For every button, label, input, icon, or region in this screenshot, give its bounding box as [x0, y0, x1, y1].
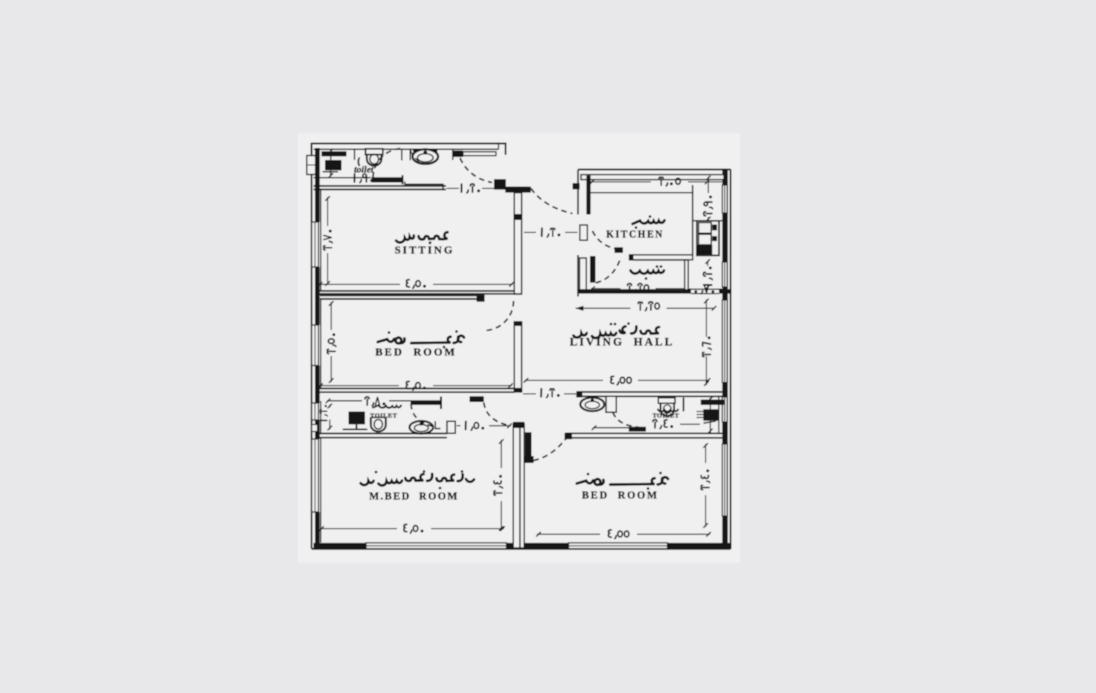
svg-text:BED ROOM: BED ROOM: [375, 347, 457, 359]
svg-text:TOILET: TOILET: [370, 412, 397, 419]
svg-text:M.BED ROOM: M.BED ROOM: [369, 492, 459, 503]
svg-text:KITCHEN: KITCHEN: [606, 230, 664, 241]
svg-text:LIVING HALL: LIVING HALL: [570, 336, 675, 348]
svg-text:SITTING: SITTING: [395, 245, 455, 257]
svg-text:BED ROOM: BED ROOM: [582, 491, 659, 502]
